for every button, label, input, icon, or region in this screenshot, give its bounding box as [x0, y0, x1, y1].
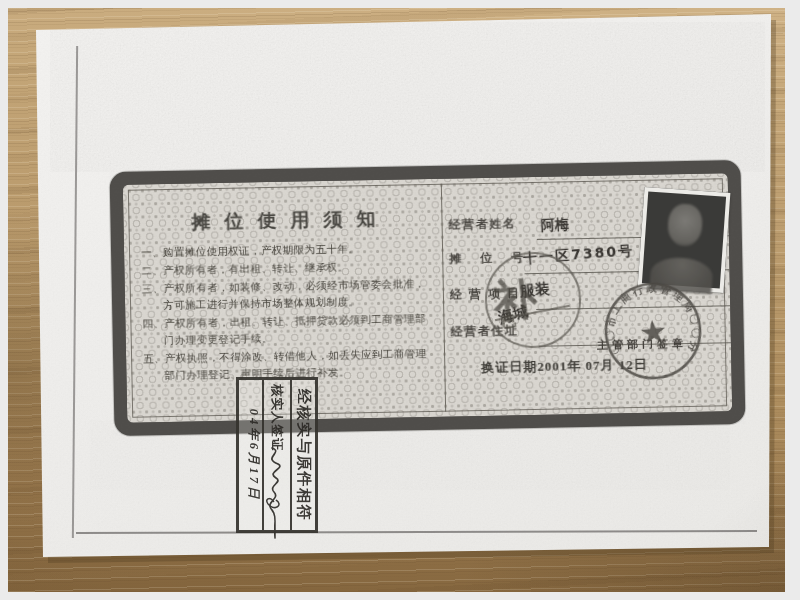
copy-edge-line-vertical: [72, 46, 78, 538]
copy-edge-line-horizontal: [76, 530, 757, 534]
notice-items: 一、购置摊位使用权证，产权期限为五十年。 二、产权所有者，有出租、转让、继承权。…: [141, 239, 436, 386]
verification-stamp-line1: 经核实与原件相符: [290, 380, 315, 530]
handwritten-signature: [258, 442, 288, 542]
operator-name-value: 阿梅: [540, 216, 569, 235]
notice-title: 摊位使用须知: [137, 205, 429, 237]
photocopy-grain-band-top: [50, 22, 765, 172]
operator-name-label: 经营者姓名: [448, 215, 516, 233]
verification-stamp-line2: 核实人签证: [262, 380, 290, 530]
notice-item-4: 四、产权所有者，出租、转让、抵押贷款必须到工商管理部门办理变更登记手续。: [142, 310, 435, 350]
photocopy-paper: 摊位使用须知 一、购置摊位使用权证，产权期限为五十年。 二、产权所有者，有出租、…: [0, 0, 800, 600]
portrait-head: [667, 203, 704, 247]
photo-of-stall-certificate: 摊位使用须知 一、购置摊位使用权证，产权期限为五十年。 二、产权所有者，有出租、…: [0, 0, 800, 600]
stamp-star-icon: ★: [637, 313, 669, 352]
verification-stamp: 经核实与原件相符 核实人签证 04年6月17日: [236, 377, 312, 527]
verification-stamp-box: 经核实与原件相符 核实人签证 04年6月17日: [236, 377, 318, 533]
administration-round-stamp: 〇〇市工商行政管理局〇〇分局 ★: [598, 276, 708, 386]
notice-item-3: 三、产权所有者，如装修、改动，必须经市场管委会批准，方可施工进行并保持市场整体规…: [142, 275, 435, 315]
